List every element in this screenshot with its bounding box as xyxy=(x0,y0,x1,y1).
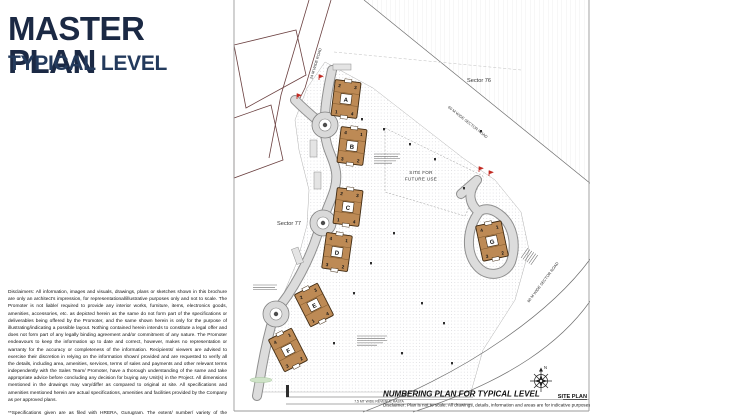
tower-a: A 2 3 1 4 xyxy=(331,78,362,121)
site-plan-drawing: A 2 3 1 4 B 4 1 3 2 C 2 3 1 4 xyxy=(233,0,590,416)
page-subtitle: TYPICAL LEVEL xyxy=(8,52,167,76)
tower-b: B 4 1 3 2 xyxy=(337,125,368,168)
specifications-note: **Specifications given are as filed with… xyxy=(8,410,227,416)
parking-row xyxy=(333,64,351,70)
tower-c: C 2 3 1 4 xyxy=(333,186,364,229)
disclaimer-text: Disclaimers: All information, images and… xyxy=(8,289,227,404)
parking-row xyxy=(314,172,321,189)
sector-77-label: Sector 77 xyxy=(277,221,301,227)
sector-76-label: Sector 76 xyxy=(467,78,491,84)
roundabout-3 xyxy=(263,301,289,327)
brochure-page: MASTER PLAN TYPICAL LEVEL Disclaimers: A… xyxy=(0,0,745,416)
compass-rose-icon: N xyxy=(530,365,552,392)
site-future-use-label-2: FUTURE USE xyxy=(405,177,437,182)
site-future-use-label: SITE FOR xyxy=(409,170,433,175)
adjacent-plot-2 xyxy=(234,105,283,178)
roundabout-2 xyxy=(310,210,336,236)
left-panel: MASTER PLAN TYPICAL LEVEL Disclaimers: A… xyxy=(0,0,232,416)
compass-north-label: N xyxy=(544,365,547,370)
road-60m-lower-label: 60 M WIDE SECTOR ROAD xyxy=(526,261,560,304)
entry-flag xyxy=(489,171,494,177)
legal-disclaimer-block: Disclaimers: All information, images and… xyxy=(8,289,227,416)
parking-row xyxy=(310,140,317,157)
road-60m-upper-label: 60 M WIDE SECTOR ROAD xyxy=(447,104,489,139)
tower-d: D 4 1 3 2 xyxy=(321,230,352,273)
footer-disclaimer: Disclaimer: Plan is not to scale. All dr… xyxy=(383,403,590,408)
plan-note xyxy=(253,285,277,290)
numbering-plan-title: NUMBERING PLAN FOR TYPICAL LEVEL xyxy=(383,390,540,399)
